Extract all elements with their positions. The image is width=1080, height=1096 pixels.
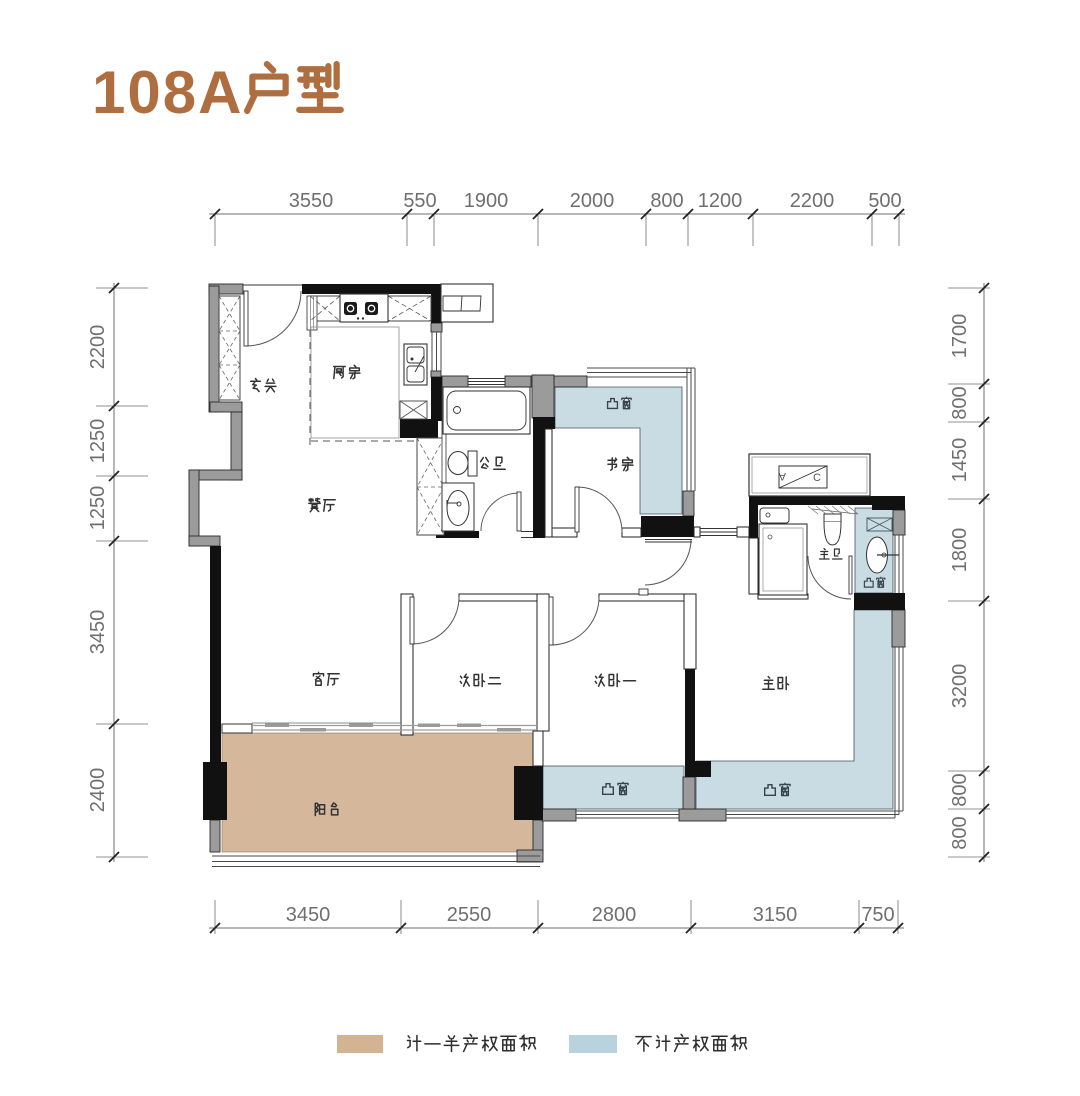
svg-text:2200: 2200: [87, 325, 109, 370]
svg-text:1800: 1800: [949, 528, 971, 573]
svg-text:3200: 3200: [949, 664, 971, 709]
svg-text:800: 800: [949, 816, 971, 849]
svg-text:3150: 3150: [753, 904, 798, 926]
svg-text:1900: 1900: [464, 190, 509, 212]
svg-text:2000: 2000: [570, 190, 615, 212]
svg-text:1200: 1200: [698, 190, 743, 212]
svg-text:108A: 108A: [92, 59, 243, 126]
svg-text:3450: 3450: [286, 904, 331, 926]
svg-text:1450: 1450: [949, 438, 971, 483]
svg-text:750: 750: [861, 904, 894, 926]
svg-text:550: 550: [403, 190, 436, 212]
svg-text:800: 800: [949, 773, 971, 806]
svg-text:1250: 1250: [87, 419, 109, 464]
svg-text:C: C: [813, 472, 821, 484]
svg-text:2550: 2550: [447, 904, 492, 926]
svg-text:800: 800: [949, 386, 971, 419]
svg-text:2200: 2200: [790, 190, 835, 212]
svg-text:1250: 1250: [87, 486, 109, 531]
svg-text:1700: 1700: [949, 314, 971, 359]
svg-text:A: A: [778, 470, 786, 482]
svg-text:3550: 3550: [289, 190, 334, 212]
svg-text:2800: 2800: [592, 904, 637, 926]
svg-text:500: 500: [868, 190, 901, 212]
svg-text:2400: 2400: [87, 768, 109, 813]
svg-text:800: 800: [650, 190, 683, 212]
svg-text:3450: 3450: [87, 610, 109, 655]
